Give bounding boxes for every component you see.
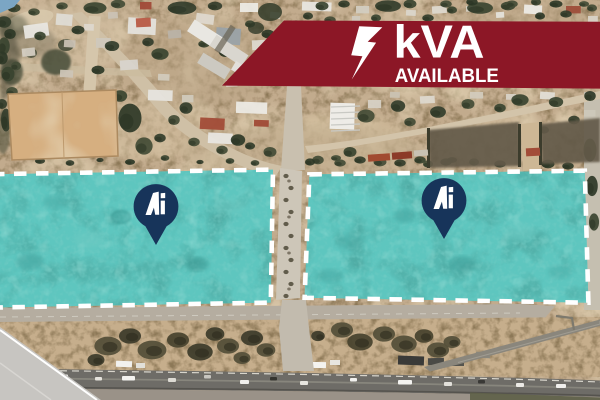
svg-text:kVA: kVA <box>394 16 485 68</box>
svg-text:AVAILABLE: AVAILABLE <box>395 65 499 87</box>
